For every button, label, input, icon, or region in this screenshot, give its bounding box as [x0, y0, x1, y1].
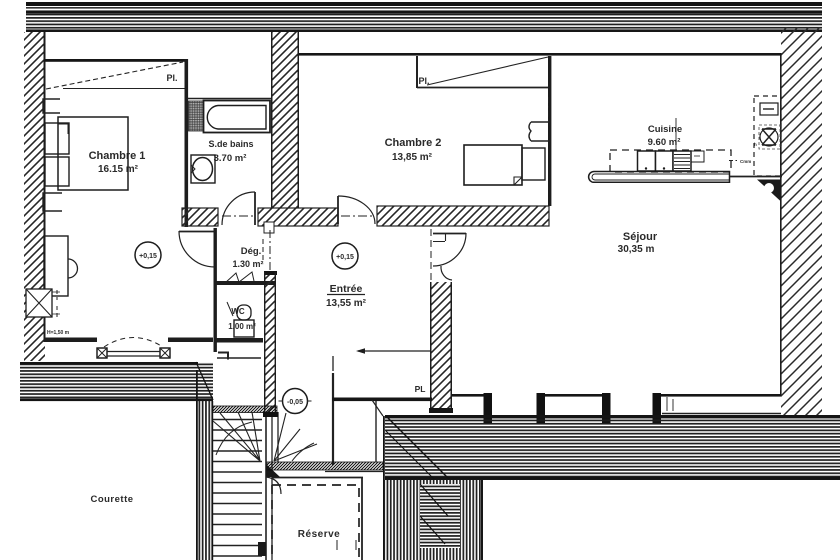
svg-text:13,55 m²: 13,55 m²	[326, 298, 367, 309]
svg-text:Entrée: Entrée	[330, 283, 363, 295]
svg-text:13,85 m²: 13,85 m²	[392, 152, 433, 163]
svg-text:9.60 m²: 9.60 m²	[648, 137, 681, 148]
svg-text:Pl.: Pl.	[166, 73, 177, 83]
svg-text:Cmm: Cmm	[740, 159, 751, 164]
svg-text:Chambre 1: Chambre 1	[89, 150, 146, 162]
svg-text:+0,15: +0,15	[139, 253, 157, 260]
svg-text:-0,05: -0,05	[287, 399, 303, 406]
svg-text:S.de bains: S.de bains	[208, 139, 253, 149]
svg-text:Chambre 2: Chambre 2	[385, 137, 442, 149]
svg-text:H=1,50 m: H=1,50 m	[47, 330, 70, 336]
svg-text:1.00 m²: 1.00 m²	[228, 322, 256, 331]
svg-text:30,35 m: 30,35 m	[618, 244, 655, 255]
svg-text:+0,15: +0,15	[336, 254, 354, 261]
svg-text:Courette: Courette	[90, 494, 133, 505]
svg-text:Cuisine: Cuisine	[648, 124, 682, 135]
svg-text:Dég.: Dég.	[241, 246, 262, 257]
svg-text:1.30 m²: 1.30 m²	[232, 259, 263, 269]
svg-text:3.70 m²: 3.70 m²	[214, 153, 247, 164]
svg-text:Réserve: Réserve	[298, 529, 340, 540]
svg-text:16.15 m²: 16.15 m²	[98, 164, 139, 175]
svg-text:Séjour: Séjour	[623, 231, 658, 243]
svg-text:h: h	[754, 142, 757, 147]
svg-text:Pl.: Pl.	[418, 76, 429, 86]
svg-text:PL: PL	[415, 384, 426, 394]
